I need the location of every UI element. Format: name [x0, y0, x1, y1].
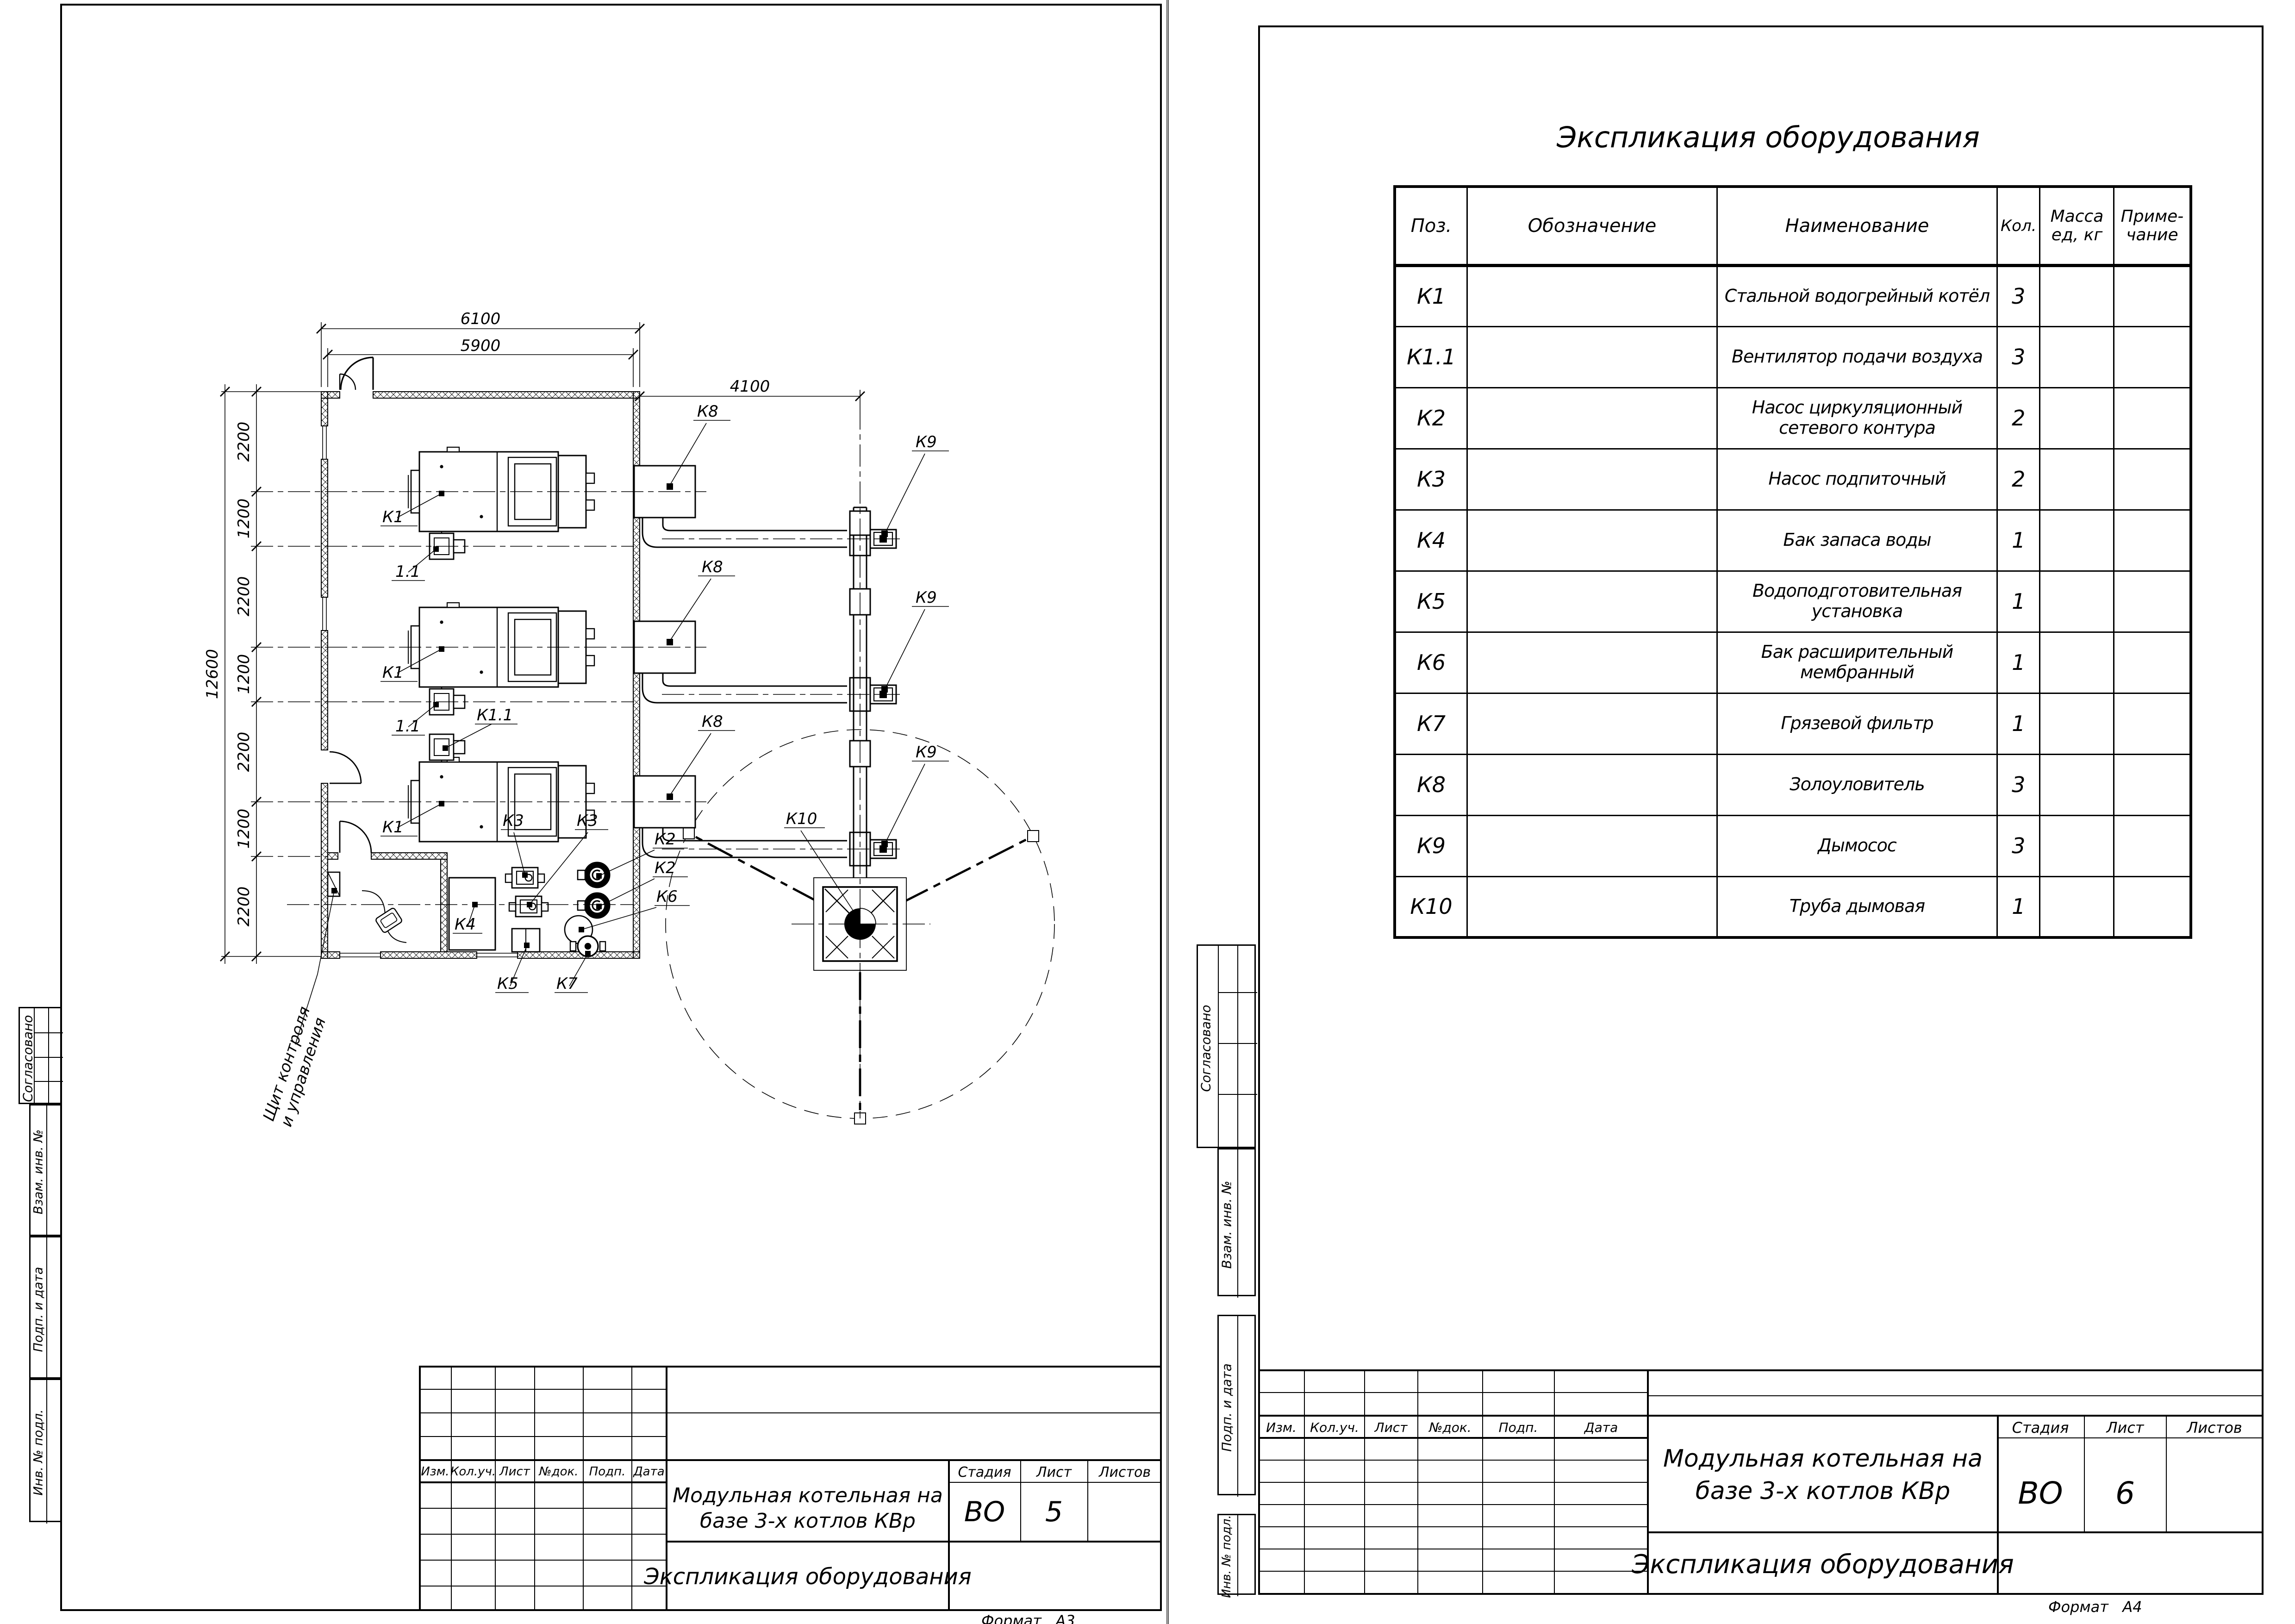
tag-k3-2: К3 [577, 812, 598, 830]
sheets-label-a3: Листов [1098, 1464, 1151, 1480]
rev-headers-a3: Изм. Кол.уч. Лист №док. Подп. Дата [421, 1465, 664, 1479]
svg-text:Лист: Лист [1374, 1420, 1408, 1435]
stamp-podp: Подп. и дата [29, 1236, 62, 1379]
sheet-value-a3: 5 [1045, 1496, 1063, 1528]
ash-catcher-flue-3 [634, 776, 896, 866]
stage-label-a3: Стадия [958, 1464, 1011, 1480]
stamp-agreed-label-r: Согласовано [1198, 995, 1214, 1102]
format-note-a4: Формат А4 [2048, 1598, 2142, 1616]
stamp-inv: Инв. № подл. [29, 1379, 62, 1522]
dim-6100: 6100 [461, 310, 501, 328]
tag-fan-1: 1.1 [395, 562, 420, 581]
tag-fan-3: К1.1 [477, 706, 513, 725]
project-title-a4: Модульная котельная на базе 3-х котлов К… [1663, 1445, 1983, 1505]
table-row: К5Водоподготовительная установка1 [1395, 571, 2191, 632]
table-row: К9Дымосос3 [1395, 815, 2191, 876]
svg-text:№док.: №док. [538, 1465, 579, 1479]
spec-header-row: Поз. Обозначение Наименование Кол. Масса… [1395, 187, 2191, 265]
circ-pump-k2-1 [578, 865, 607, 885]
table-row: К4Бак запаса воды1 [1395, 510, 2191, 571]
svg-text:базе 3-х котлов КВр: базе 3-х котлов КВр [700, 1509, 916, 1533]
doors [330, 357, 373, 853]
tag-fan-2: 1.1 [395, 717, 420, 736]
sheets-label-a4: Листов [2186, 1419, 2242, 1437]
table-row: К7Грязевой фильтр1 [1395, 693, 2191, 754]
stamp-podp-label: Подп. и дата [31, 1247, 46, 1372]
svg-text:1200: 1200 [235, 499, 253, 539]
tag-k6: К6 [656, 887, 678, 906]
boiler-house-plan: 6100 5900 4100 12600 2200 1200 2200 1200… [199, 278, 1079, 1296]
svg-text:1200: 1200 [235, 654, 253, 694]
stamp-vzam-label-r: Взам. инв. № [1219, 1158, 1235, 1292]
stamp-agreed-grid-r: Согласовано [1197, 944, 1256, 1148]
tag-k5: К5 [497, 974, 518, 993]
sheet-label-a4: Лист [2106, 1419, 2144, 1437]
tag-k1-3: К1 [382, 818, 404, 837]
svg-text:2200: 2200 [235, 887, 253, 927]
svg-text:Модульная котельная на: Модульная котельная на [1663, 1445, 1983, 1473]
tag-k10: К10 [786, 810, 817, 828]
svg-text:базе 3-х котлов КВр: базе 3-х котлов КВр [1696, 1477, 1951, 1505]
tag-k8-1: К8 [697, 402, 718, 421]
svg-text:2200: 2200 [235, 576, 253, 617]
svg-text:2200: 2200 [235, 422, 253, 462]
tag-k7: К7 [556, 974, 578, 993]
boiler-3 [408, 757, 594, 842]
svg-text:Изм.: Изм. [1266, 1420, 1297, 1435]
col-note: Приме-чание [2114, 187, 2191, 265]
table-row: К1.1Вентилятор подачи воздуха3 [1395, 326, 2191, 387]
stamp-inv-label: Инв. № подл. [31, 1390, 46, 1515]
col-mass: Массаед, кг [2040, 187, 2114, 265]
boiler-2 [408, 603, 594, 687]
svg-text:Модульная котельная на: Модульная котельная на [673, 1484, 943, 1507]
tag-k9-3: К9 [916, 743, 937, 762]
stage-value-a3: ВО [964, 1496, 1005, 1528]
doc-title-a3: Экспликация оборудования [643, 1564, 971, 1590]
tag-k4: К4 [455, 915, 476, 934]
drawing-page: Согласовано Взам. инв. № Подп. и дата Ин… [0, 0, 2295, 1624]
dim-4100: 4100 [730, 377, 770, 396]
table-row: К8Золоуловитель3 [1395, 754, 2191, 815]
project-title-a3: Модульная котельная на базе 3-х котлов К… [673, 1484, 943, 1533]
sink [362, 891, 406, 943]
col-qty: Кол. [1997, 187, 2040, 265]
format-note-a3: Формат А3 [981, 1612, 1075, 1624]
circ-pump-k2-2 [578, 895, 607, 916]
stamp-podp-label-r: Подп. и дата [1219, 1341, 1235, 1475]
tag-k8-3: К8 [702, 712, 723, 731]
svg-text:№док.: №док. [1428, 1420, 1471, 1435]
col-designation: Обозначение [1467, 187, 1717, 265]
title-block-a4: Изм. Кол.уч. Лист №док. Подп. Дата Модул… [1258, 1369, 2264, 1595]
table-row: К1Стальной водогрейный котёл3 [1395, 265, 2191, 326]
sheet-a3-plan: Согласовано Взам. инв. № Подп. и дата Ин… [0, 0, 1166, 1624]
stamp-agreed-grid: Согласовано [19, 1007, 62, 1104]
svg-text:Кол.уч.: Кол.уч. [1310, 1420, 1359, 1435]
col-pos: Поз. [1395, 187, 1467, 265]
dim-5900: 5900 [461, 337, 501, 355]
svg-text:Изм.: Изм. [421, 1465, 449, 1479]
svg-text:1200: 1200 [235, 809, 253, 849]
tag-k3-1: К3 [503, 812, 524, 830]
table-row: К6Бак расширительный мембранный1 [1395, 632, 2191, 693]
stamp-agreed-label: Согласовано [20, 1015, 36, 1103]
col-name: Наименование [1717, 187, 1997, 265]
sheet-label-a3: Лист [1036, 1464, 1073, 1480]
tag-k2-1: К2 [655, 830, 676, 849]
table-row: К3Насос подпиточный2 [1395, 449, 2191, 510]
title-block-a3: Изм. Кол.уч. Лист №док. Подп. Дата Модул… [419, 1366, 1162, 1611]
svg-text:Дата: Дата [1584, 1420, 1618, 1435]
svg-text:Подп.: Подп. [589, 1465, 626, 1479]
dim-12600: 12600 [203, 649, 222, 699]
sheet-value-a4: 6 [2115, 1475, 2135, 1511]
tag-k9-1: К9 [916, 433, 937, 451]
tag-k1-2: К1 [382, 663, 404, 682]
equipment-tags: К1 К1 К1 1.1 1.1 К1.1 К8 К8 К8 К9 К9 К9 … [260, 402, 937, 1129]
stamp-vzam: Взам. инв. № [29, 1104, 62, 1236]
tag-k2-2: К2 [655, 859, 676, 877]
table-row: К2Насос циркуляционный сетевого контура2 [1395, 387, 2191, 449]
stamp-inv-r: Инв. № подл. [1217, 1514, 1256, 1595]
svg-text:Дата: Дата [633, 1465, 664, 1479]
stamp-inv-label-r: Инв. № подл. [1220, 1489, 1234, 1624]
spec-table: Поз. Обозначение Наименование Кол. Масса… [1393, 185, 2192, 939]
stamp-vzam-label: Взам. инв. № [31, 1110, 46, 1235]
svg-text:Подп.: Подп. [1499, 1420, 1538, 1435]
sheet-a4-spec: Согласовано Взам. инв. № Подп. и дата Ин… [1169, 0, 2295, 1624]
tag-k9-2: К9 [916, 588, 937, 607]
boiler-1 [408, 447, 594, 531]
tag-k1-1: К1 [382, 508, 404, 526]
doc-title-a4: Экспликация оборудования [1631, 1549, 2014, 1580]
svg-text:Лист: Лист [499, 1465, 530, 1479]
ash-catcher-flue-2 [634, 621, 896, 711]
stage-label-a4: Стадия [2012, 1419, 2069, 1437]
table-row: К10Труба дымовая1 [1395, 876, 2191, 937]
rev-headers-a4: Изм. Кол.уч. Лист №док. Подп. Дата [1266, 1420, 1618, 1435]
tag-k8-2: К8 [702, 558, 723, 576]
stage-value-a4: ВО [2018, 1475, 2063, 1511]
svg-text:Кол.уч.: Кол.уч. [450, 1465, 496, 1479]
svg-text:2200: 2200 [235, 732, 253, 772]
pump-room [328, 865, 607, 956]
stamp-vzam-r: Взам. инв. № [1217, 1148, 1256, 1296]
spec-table-title: Экспликация оборудования [1393, 120, 2143, 154]
stamp-podp-r: Подп. и дата [1217, 1315, 1256, 1495]
